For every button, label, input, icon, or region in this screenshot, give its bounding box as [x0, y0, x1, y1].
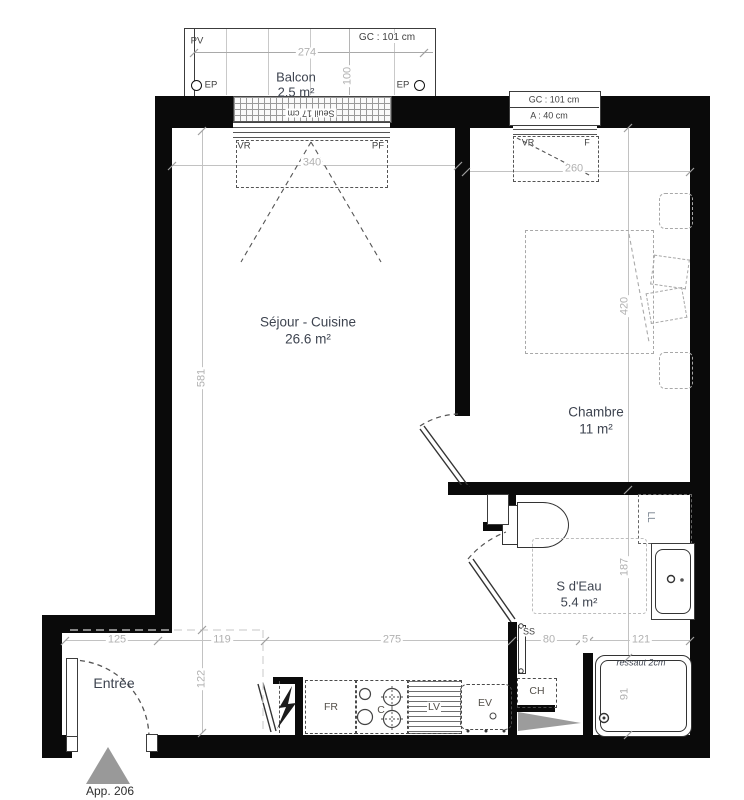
- closet-door-leaf: [258, 683, 276, 732]
- dim-kitchen-width: 275: [381, 635, 403, 646]
- door-direction-triangle: [518, 712, 581, 731]
- dim-wall-width: 5: [580, 635, 590, 646]
- duct-niche: [487, 494, 509, 525]
- bedroom-door-swing-arc: [420, 414, 458, 426]
- dim-balcony-depth: 100: [343, 65, 354, 87]
- kitchen-sink-label: EV: [478, 698, 492, 709]
- room-name-entree: Entrée: [93, 676, 134, 690]
- dishwasher-label: LV: [427, 702, 441, 713]
- downpipe-label: PV: [191, 36, 204, 46]
- room-area-chambre: 11 m²: [579, 422, 613, 436]
- apartment-label: App. 206: [86, 785, 134, 797]
- dim-entree-depth: 122: [197, 668, 208, 690]
- door-jamb: [146, 734, 158, 752]
- balcony-pf-label: PF: [372, 141, 384, 151]
- dim-shower-height: 91: [620, 686, 631, 702]
- dim-sejour-height: 581: [197, 367, 208, 389]
- dim-chambre-width: 260: [563, 164, 585, 175]
- shower-drain-icon: [600, 714, 609, 723]
- room-name-chambre: Chambre: [568, 405, 624, 419]
- dim-balcony-width: 274: [296, 48, 318, 59]
- dim-hall-width: 119: [211, 635, 233, 646]
- entrance-door-leaf: [66, 658, 78, 737]
- room-name-sdeau: S d'Eau: [556, 580, 601, 593]
- dim-shower-width: 121: [630, 635, 652, 646]
- floor-plan: PV GC : 101 cm 274 Balcon 2.5 m² 100 EP …: [0, 0, 744, 800]
- bedroom-window-vr-label: VR: [522, 139, 535, 148]
- bedroom-door-leaf: [420, 426, 469, 490]
- dim-ch-width: 80: [541, 635, 557, 646]
- faucet-icon: [668, 576, 684, 583]
- balcony-gc-label: GC : 101 cm: [357, 33, 417, 43]
- room-area-sdeau: 5.4 m²: [561, 596, 598, 609]
- info-box-divider: [509, 107, 599, 108]
- bathroom-door-swing-arc: [468, 532, 506, 559]
- room-area-sejour: 26.6 m²: [285, 332, 331, 346]
- entrance-door-swing-arc: [71, 660, 149, 738]
- dim-chambre-height: 420: [620, 295, 631, 317]
- ep-left-label: EP: [205, 80, 218, 90]
- room-name-balcon: Balcon: [276, 71, 316, 84]
- balcony-vr-label: VR: [237, 141, 250, 151]
- door-hinge-block: [459, 485, 469, 494]
- towel-radiator-label: SS: [522, 628, 536, 637]
- water-heater-label: CH: [529, 686, 544, 697]
- cooktop-label: C: [377, 705, 385, 716]
- threshold-label: Seuil 17 cm: [285, 109, 336, 118]
- washing-machine-label: LL: [645, 511, 655, 522]
- entrance-arrow-icon: [86, 747, 130, 784]
- ep-right-label: EP: [397, 80, 410, 90]
- bathroom-door-leaf: [469, 559, 515, 622]
- electrical-panel-bolt-icon: [277, 686, 296, 729]
- dimension-ticks: [61, 49, 694, 739]
- dim-entree-width: 125: [106, 635, 128, 646]
- shower-step-label: ressaut 2cm: [616, 659, 665, 668]
- bedroom-window-f-label: F: [584, 139, 590, 148]
- bed-cover-fold-line: [629, 234, 649, 342]
- sink-details: [467, 713, 506, 733]
- dim-sdeau-height: 187: [620, 556, 631, 578]
- bedroom-window-gc-label: GC : 101 cm: [529, 96, 580, 105]
- bedroom-window-allege-label: A : 40 cm: [530, 112, 568, 121]
- room-name-sejour: Séjour - Cuisine: [260, 315, 356, 329]
- fridge-label: FR: [324, 702, 338, 713]
- dim-sejour-width: 340: [301, 158, 323, 169]
- room-area-balcon: 2.5 m²: [278, 86, 315, 99]
